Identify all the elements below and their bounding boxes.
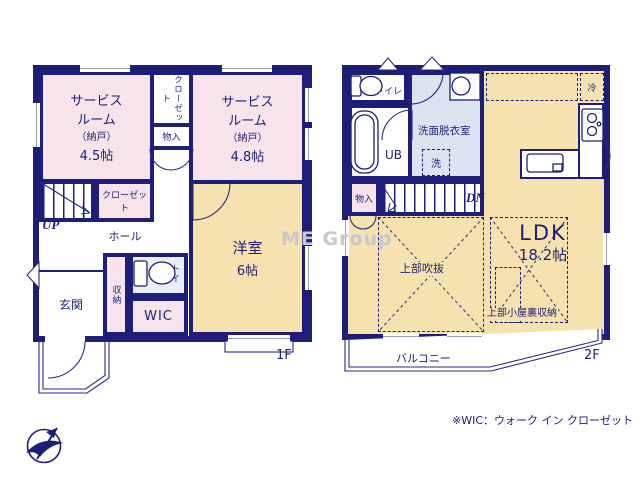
room-size: 4.8帖 <box>231 146 265 165</box>
room-entrance: 玄関 <box>39 270 103 336</box>
stairs-down-label: DN <box>466 190 485 206</box>
room-name: 収納 <box>110 285 123 305</box>
room-size: 4.5帖 <box>80 145 114 164</box>
kitchen-cupboard <box>486 73 578 101</box>
kitchen-counter-sink <box>520 149 580 179</box>
fridge-label: 冷 <box>587 81 596 94</box>
washer-label: 洗 <box>431 155 441 170</box>
room-name: WIC <box>144 309 173 324</box>
room-name: ルーム <box>228 110 267 129</box>
room-name: クローゼット <box>99 188 150 214</box>
window <box>305 128 312 160</box>
stairs-1f <box>39 180 95 222</box>
room-name: トイレ <box>375 84 402 97</box>
window <box>447 333 482 340</box>
ldk-size-label: 18.2帖 <box>508 246 578 265</box>
window <box>33 103 40 147</box>
window <box>228 335 290 342</box>
room-closet-mid: クローゼット <box>95 180 154 222</box>
fridge-space: 冷 <box>580 73 604 101</box>
room-name: UB <box>385 148 402 162</box>
room-toilet-1f: トイレ <box>129 253 188 297</box>
entrance-door-arc <box>48 341 85 378</box>
porch-outline-inner <box>43 341 105 389</box>
room-name: クローゼット <box>160 75 184 123</box>
window <box>80 65 130 72</box>
room-subname: （納戸） <box>77 128 117 143</box>
stairs-up-label: UP <box>42 217 59 233</box>
window <box>305 88 312 122</box>
room-name: ルーム <box>77 109 116 128</box>
room-name: 物入 <box>162 130 180 143</box>
room-name: 玄関 <box>59 296 83 313</box>
room-monoire-2f: 物入 <box>348 180 380 216</box>
room-service-4_5: サービス ルーム （納戸） 4.5帖 <box>39 71 154 183</box>
window <box>383 333 419 340</box>
window <box>603 233 610 265</box>
room-storage-tall: 収納 <box>103 253 129 336</box>
room-monoire-1f: 物入 <box>150 123 193 150</box>
hall-label: ホール <box>95 230 155 244</box>
room-toilet-2f: トイレ <box>348 71 408 104</box>
room-subname: （納戸） <box>228 129 268 144</box>
watermark: ME Group <box>281 228 393 250</box>
room-name: 物入 <box>355 192 373 205</box>
floor-2-label: 2F <box>584 348 600 364</box>
window <box>305 246 312 290</box>
room-washroom: 洗面脱衣室 洗 <box>408 71 484 180</box>
room-closet-top: クローゼット <box>150 71 193 127</box>
room-name: サービス <box>221 91 273 110</box>
ldk-label: LDK <box>508 220 578 246</box>
compass-icon <box>26 428 63 463</box>
room-name: サービス <box>70 90 122 109</box>
room-western: 洋室 6帖 <box>189 180 306 336</box>
room-name: 洗面脱衣室 <box>418 123 471 138</box>
room-size: 6帖 <box>237 260 258 279</box>
room-name: トイレ <box>155 264 181 293</box>
window <box>222 65 272 72</box>
kitchen-counter-stove <box>578 103 604 179</box>
room-unit-bath: UB <box>348 104 412 180</box>
wic-note: ※WIC：ウォーク イン クローゼット <box>452 412 633 428</box>
floor-1-label: 1F <box>276 348 292 364</box>
entrance-door-gap <box>45 335 85 342</box>
washer-space: 洗 <box>422 149 450 176</box>
porch-outline <box>39 341 109 393</box>
room-service-4_8: サービス ルーム （納戸） 4.8帖 <box>189 71 306 184</box>
floor-1-plan: サービス ルーム （納戸） 4.5帖 クローゼット 物入 サービス ルーム （納… <box>33 65 312 342</box>
attic-label: 上部小屋裏収納 <box>486 308 558 321</box>
room-wic: WIC <box>129 297 188 336</box>
void-label: 上部吹抜 <box>398 262 446 276</box>
balcony-label: バルコニー <box>396 352 451 366</box>
room-name: 洋室 <box>232 237 262 258</box>
floorplan-canvas: サービス ルーム （納戸） 4.5帖 クローゼット 物入 サービス ルーム （納… <box>0 0 640 480</box>
